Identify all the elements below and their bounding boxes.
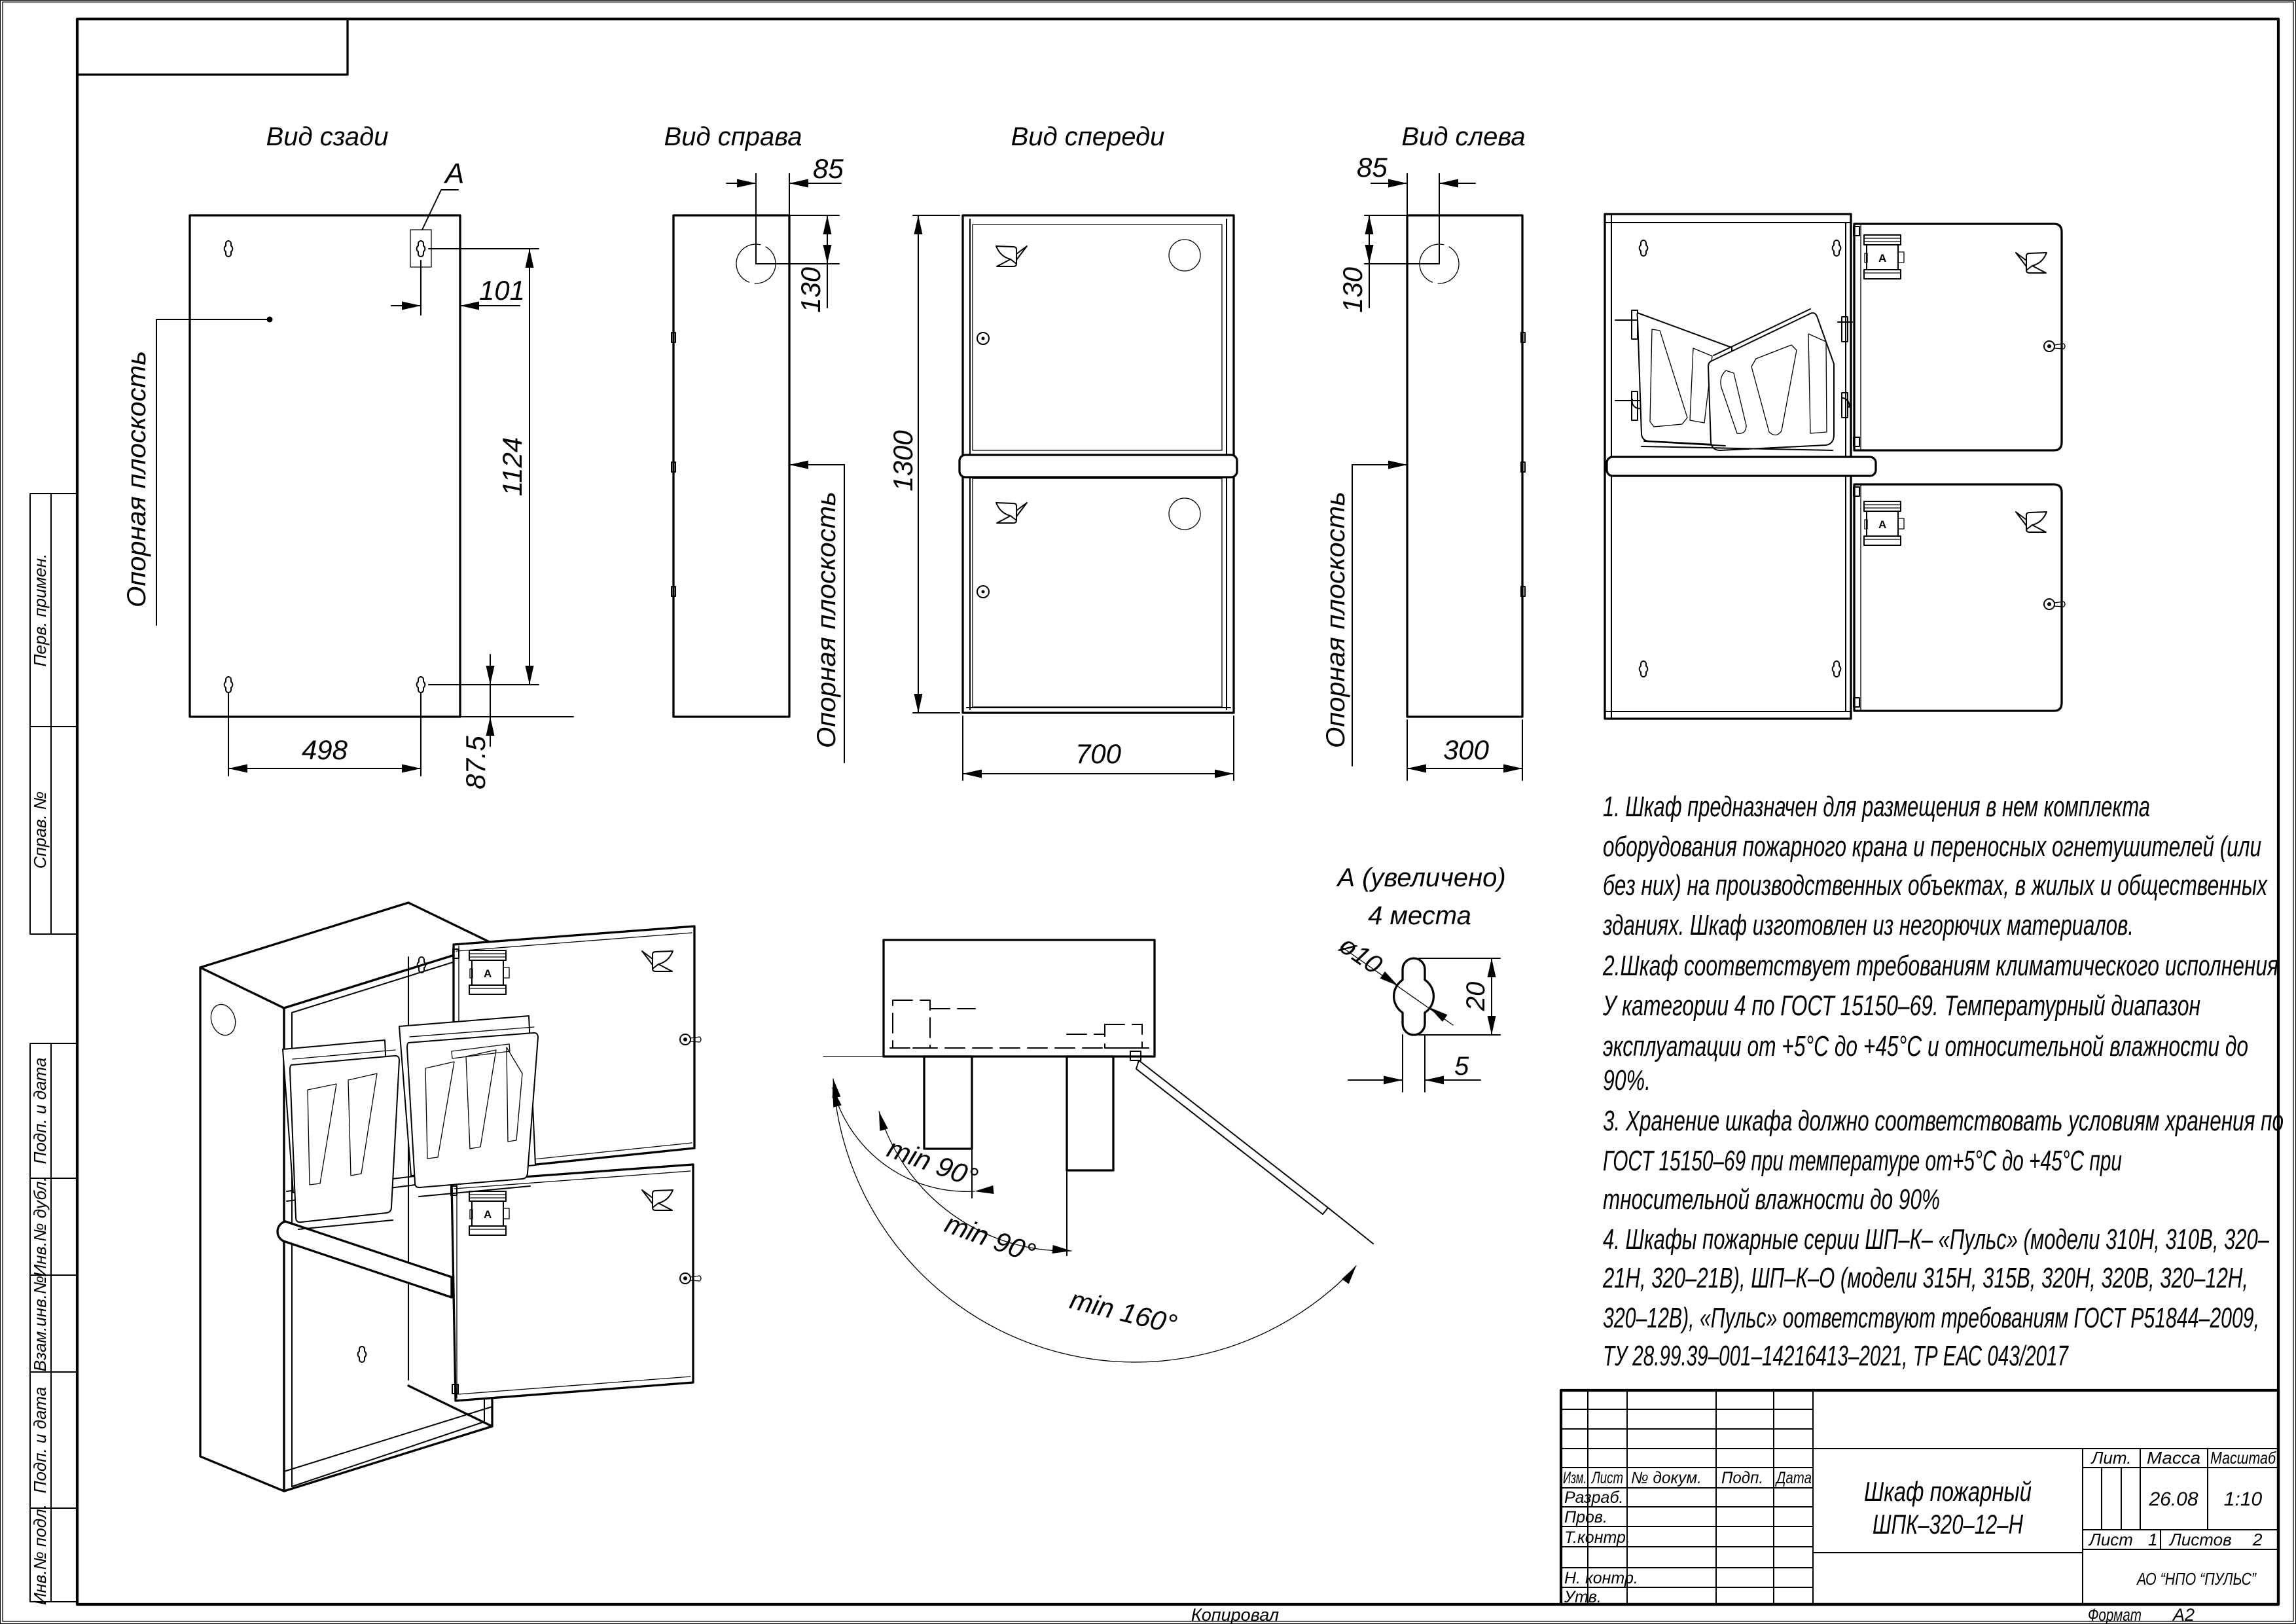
svg-text:1124: 1124	[497, 437, 528, 496]
svg-text:Взам.инв.№: Взам.инв.№	[30, 1276, 50, 1371]
svg-text:Перв. примен.: Перв. примен.	[30, 554, 50, 667]
svg-text:21Н, 320–21В), ШП–К–О (модели: 21Н, 320–21В), ШП–К–О (модели 315Н, 315В…	[1602, 1262, 2248, 1294]
svg-text:Дата: Дата	[1775, 1469, 1812, 1487]
svg-text:90%.: 90%.	[1603, 1064, 1651, 1096]
svg-text:оборудования пожарного крана и: оборудования пожарного крана и переносны…	[1603, 831, 2261, 863]
svg-text:ШПК–320–12–Н: ШПК–320–12–Н	[1873, 1509, 2023, 1540]
svg-text:320–12В), «Пульс» оответствуют: 320–12В), «Пульс» оответствуют требовани…	[1603, 1302, 2259, 1334]
svg-text:ТУ 28.99.39–001–14216413–2021,: ТУ 28.99.39–001–14216413–2021, ТР ЕАС 04…	[1603, 1340, 2069, 1372]
svg-text:4 места: 4 места	[1368, 901, 1471, 930]
svg-text:1: 1	[2148, 1530, 2157, 1549]
svg-text:Копировал: Копировал	[1191, 1605, 1279, 1624]
svg-text:1. Шкаф предназначен для разме: 1. Шкаф предназначен для размещения в не…	[1603, 791, 2150, 823]
svg-text:зданиях. Шкаф изготовлен из не: зданиях. Шкаф изготовлен из негорючих ма…	[1602, 909, 2134, 941]
svg-text:Подп.: Подп.	[1721, 1469, 1763, 1487]
svg-text:Формат: Формат	[2088, 1605, 2142, 1624]
svg-text:3. Хранение шкафа должно соотв: 3. Хранение шкафа должно соответствовать…	[1603, 1105, 2284, 1137]
svg-text:26.08: 26.08	[2148, 1489, 2198, 1510]
svg-text:Пров.: Пров.	[1564, 1508, 1607, 1526]
svg-text:Инв.№ дубл.: Инв.№ дубл.	[30, 1177, 50, 1277]
svg-text:1300: 1300	[888, 430, 918, 492]
svg-text:без них) на производственных о: без них) на производственных объектах, в…	[1603, 869, 2268, 901]
svg-text:Лист: Лист	[1591, 1469, 1623, 1487]
svg-text:Подп. и дата: Подп. и дата	[30, 1058, 50, 1164]
svg-text:101: 101	[479, 275, 525, 306]
svg-text:Вид слева: Вид слева	[1401, 122, 1525, 151]
svg-text:АО “НПО “ПУЛЬС”: АО “НПО “ПУЛЬС”	[2136, 1569, 2257, 1589]
svg-text:А2: А2	[2172, 1605, 2195, 1624]
svg-text:Масса: Масса	[2147, 1448, 2200, 1468]
svg-text:Опорная плоскость: Опорная плоскость	[1321, 492, 1350, 748]
svg-text:2: 2	[2252, 1530, 2263, 1549]
svg-text:Масштаб: Масштаб	[2210, 1448, 2276, 1468]
svg-text:Подп. и дата: Подп. и дата	[30, 1387, 50, 1494]
svg-text:Т.контр.: Т.контр.	[1564, 1528, 1630, 1547]
svg-text:300: 300	[1443, 734, 1490, 765]
svg-text:Листов: Листов	[2168, 1530, 2232, 1549]
svg-text:1:10: 1:10	[2224, 1489, 2263, 1510]
svg-text:85: 85	[1357, 152, 1388, 183]
svg-text:Лист: Лист	[2088, 1530, 2133, 1549]
svg-text:№ докум.: № докум.	[1631, 1469, 1702, 1487]
svg-text:ГОСТ 15150–69 при температуре: ГОСТ 15150–69 при температуре от+5°С до …	[1603, 1145, 2122, 1177]
svg-text:Вид спереди: Вид спереди	[1011, 122, 1165, 151]
svg-text:87.5: 87.5	[460, 735, 491, 789]
svg-text:85: 85	[813, 153, 844, 184]
svg-text:А (увеличено): А (увеличено)	[1336, 863, 1505, 892]
svg-text:Изм.: Изм.	[1563, 1469, 1587, 1487]
svg-text:130: 130	[1337, 266, 1368, 313]
svg-text:4. Шкафы пожарные серии ШП–К–: 4. Шкафы пожарные серии ШП–К– «Пульс» (м…	[1603, 1223, 2269, 1255]
svg-text:Утв.: Утв.	[1564, 1588, 1602, 1606]
svg-text:У категории 4 по ГОСТ 15150–69: У категории 4 по ГОСТ 15150–69. Температ…	[1602, 990, 2200, 1022]
svg-text:Справ. №: Справ. №	[30, 791, 50, 869]
svg-text:2.Шкаф соответствует требован: 2.Шкаф соответствует требованиям климати…	[1602, 950, 2278, 982]
svg-text:Лит.: Лит.	[2090, 1448, 2132, 1468]
svg-text:5: 5	[1454, 1052, 1469, 1081]
svg-text:Шкаф пожарный: Шкаф пожарный	[1864, 1476, 2032, 1507]
svg-text:Инв.№ подл.: Инв.№ подл.	[30, 1504, 50, 1605]
svg-text:20: 20	[1462, 982, 1490, 1012]
svg-text:эксплуатации от +5°С до +45°С: эксплуатации от +5°С до +45°С и относите…	[1603, 1030, 2248, 1062]
svg-text:700: 700	[1075, 738, 1122, 769]
svg-text:Разраб.: Разраб.	[1564, 1489, 1623, 1507]
svg-text:Опорная плоскость: Опорная плоскость	[812, 492, 841, 748]
svg-text:тносительной влажности до 90%: тносительной влажности до 90%	[1603, 1183, 1940, 1216]
svg-text:Н. контр.: Н. контр.	[1564, 1569, 1638, 1587]
svg-text:Вид справа: Вид справа	[664, 122, 802, 151]
svg-text:498: 498	[302, 734, 348, 765]
svg-text:А: А	[443, 158, 464, 190]
svg-text:Вид сзади: Вид сзади	[266, 122, 389, 151]
svg-text:Опорная плоскость: Опорная плоскость	[122, 351, 151, 607]
svg-text:130: 130	[795, 266, 826, 313]
